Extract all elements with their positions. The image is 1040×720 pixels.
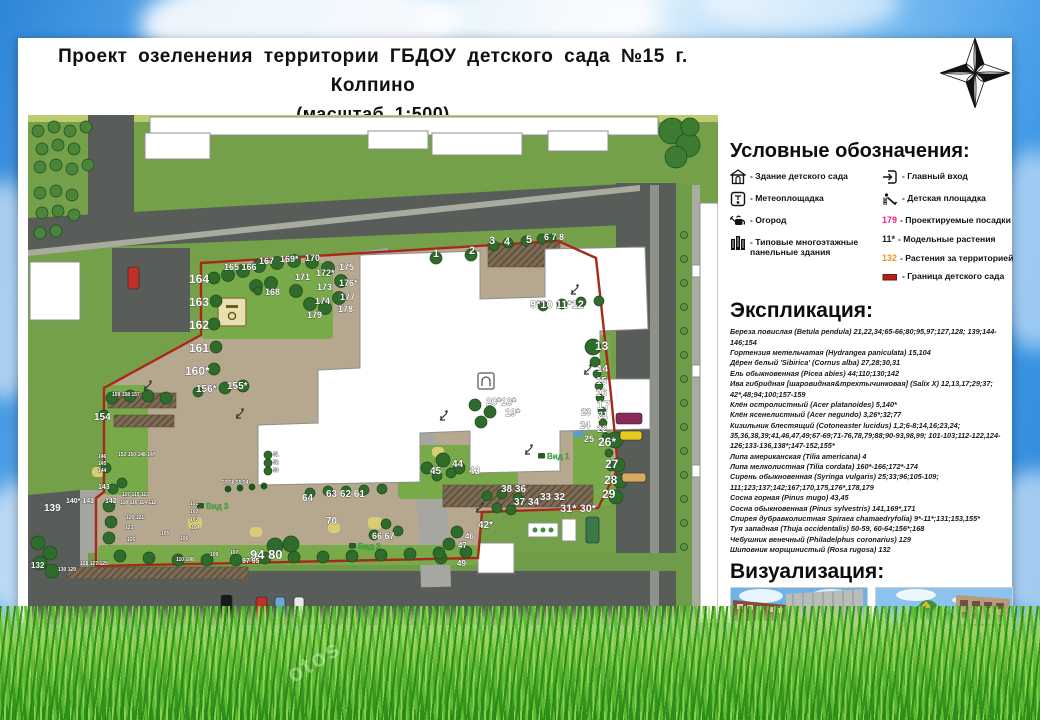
tree (475, 416, 487, 428)
map-plant-number: 178 (338, 304, 353, 314)
tree (443, 538, 455, 550)
map-plant-number: 156* (196, 384, 217, 395)
legend-item: 11*- Модельные растения (882, 234, 1015, 245)
legend-number-chip: 11* (882, 234, 895, 245)
explication-item: Шиповник морщинистый (Rosa rugosa) 132 (730, 545, 1015, 555)
explication-item: Гортензия метельчатая (Hydrangea panicul… (730, 348, 1015, 358)
map-plant-number: 103 (190, 517, 199, 523)
map-plant-number: 132 (31, 561, 45, 570)
tree (436, 453, 450, 467)
legend-item: 132- Растения за территорией (882, 253, 1015, 264)
map-plant-number: 33 32 (540, 492, 565, 503)
map-plant-number: 28 (604, 473, 618, 487)
map-plant-number: 109 (210, 552, 219, 558)
tree (160, 392, 172, 404)
map-plant-number: 126 (127, 537, 136, 543)
legend-item-label: - Проектируемые посадки (900, 215, 1011, 225)
map-plant-number: 44 (452, 459, 464, 470)
tree (261, 483, 267, 489)
legend-item: - Здание детского сада (730, 171, 876, 185)
tree (254, 287, 262, 295)
map-plant-number: 19* (505, 408, 520, 419)
map-plant-number: 106 (180, 536, 189, 542)
map-sand-patch (368, 517, 382, 529)
map-plant-number: 152 150 148 147 (118, 452, 156, 458)
tree (208, 272, 220, 284)
slide-glyph (589, 364, 592, 367)
legend-item-label: - Детская площадка (902, 193, 986, 203)
map-plant-number: 164 (189, 272, 209, 286)
tree (50, 225, 62, 237)
playground-slide-icon (882, 191, 898, 207)
map-plant-number: 97 95 (242, 558, 260, 565)
map-plant-number: 175 (339, 262, 354, 272)
meteo-site-icon (730, 191, 746, 207)
map-plant-number: 142 (105, 498, 117, 505)
tree (117, 478, 127, 488)
tree (346, 550, 358, 562)
car (128, 267, 139, 289)
view-label: Вид 3 (206, 502, 229, 511)
explication-item: Дёрен белый 'Sibirica' (Cornus alba) 27,… (730, 358, 1015, 368)
tree (210, 341, 222, 353)
tree (290, 285, 303, 298)
legend-item-label: - Граница детского сада (902, 271, 1004, 281)
tree (34, 187, 46, 199)
map-plant-number: 169* (280, 254, 299, 264)
tree (225, 486, 231, 492)
map-plant-number: 9*10 11*12 (530, 299, 584, 311)
territory-border-swatch (882, 269, 898, 285)
legend-item: - Типовые многоэтажные панельные здания (730, 237, 876, 258)
map-plant-number: 168 (265, 287, 280, 297)
tree (52, 205, 64, 217)
map-plant-number: 144 (98, 468, 107, 474)
legend: - Здание детского сада- Метеоплощадка- О… (730, 171, 1015, 293)
map-plant-number: 128 127 125 (80, 561, 108, 567)
slide-glyph (530, 444, 533, 447)
cloud (700, 0, 900, 34)
map-plant-number: 4 (504, 236, 511, 248)
tree (142, 390, 154, 402)
map-plant-number: 167 (259, 256, 274, 266)
tree (681, 256, 688, 263)
map-plant-number: 159 158 157 (112, 392, 140, 398)
map-plant-number: 140* 141 (66, 498, 94, 505)
tree (64, 125, 76, 137)
explication-heading: Экспликация: (730, 299, 1015, 323)
tree (68, 143, 80, 155)
map-plant-number: 21 (598, 410, 608, 420)
tree (681, 496, 688, 503)
tree (66, 189, 78, 201)
tree (594, 296, 604, 306)
camera-icon (538, 453, 545, 459)
map-plant-number: 163 (189, 295, 209, 309)
tree (52, 139, 64, 151)
playground-area (114, 415, 174, 427)
title-line-1: Проект озеленения территории ГБДОУ детск… (28, 42, 718, 101)
tree (605, 449, 613, 457)
tree (36, 207, 48, 219)
tree (681, 472, 688, 479)
explication-item: Сирень обыкновенная (Syringa vulgaris) 2… (730, 472, 1015, 493)
map-sand-patch (250, 527, 262, 537)
tree (34, 227, 46, 239)
map-plant-number: 27 (605, 457, 619, 471)
map-plant-number: 170 (305, 253, 320, 263)
explication-item: Ива гибридная [шаровидная&трехтычинковая… (730, 379, 1015, 400)
map-plant-number: 176* (339, 278, 358, 288)
explication-item: Липа мелколистная (Tilia cordata) 160*-1… (730, 462, 1015, 472)
map-plant-number: 1 (433, 248, 439, 260)
tree (80, 121, 92, 133)
legend-column-2: - Главный вход- Детская площадка179- Про… (882, 171, 1015, 293)
legend-item: - Метеоплощадка (730, 193, 876, 207)
tree (681, 352, 688, 359)
slide-glyph (481, 502, 484, 505)
tree (681, 118, 699, 136)
map-plant-number: 154 (94, 412, 111, 423)
legend-item: - Граница детского сада (882, 271, 1015, 285)
map-plant-number: 25 (584, 434, 594, 444)
map-plant-number: 160* (185, 364, 210, 378)
slide-glyph (241, 408, 244, 411)
tree (288, 551, 300, 563)
car (620, 431, 642, 440)
map-plant-number: 174 (315, 296, 330, 306)
legend-item-label: - Главный вход (902, 171, 968, 181)
tree (208, 318, 220, 330)
tree (681, 448, 688, 455)
tree (681, 520, 688, 527)
tree (283, 536, 299, 552)
map-plant-number: 130 129 (58, 567, 76, 573)
map-plant-number: 24 (580, 420, 590, 430)
explication-item: Чебушник венечный (Philadelphus coronari… (730, 535, 1015, 545)
tree (377, 484, 387, 494)
map-plant-number: 37 34 (514, 497, 539, 508)
explication-item: Сосна обыкновенная (Pinus sylvestris) 14… (730, 504, 1015, 514)
apartment-buildings-icon (730, 235, 746, 251)
map-plant-number: 105 (161, 531, 170, 537)
map-plant-number: 26* (598, 435, 616, 449)
map-plant-number: 43 (469, 466, 481, 477)
tree (482, 491, 492, 501)
map-plant-number: 38 36 (501, 484, 526, 495)
main-entrance-marker (478, 373, 494, 389)
tree (36, 143, 48, 155)
explication-list: Береза повислая (Betula pendula) 21,22,3… (730, 327, 1015, 555)
map-plant-number: 31* 30* (560, 503, 597, 515)
slide-glyph (445, 410, 448, 413)
tree (264, 467, 272, 475)
map-plant-number: 63 62 61 (326, 489, 365, 500)
map-plant-number: 14 (597, 364, 609, 375)
tree (31, 536, 45, 550)
legend-heading: Условные обозначения: (730, 140, 1015, 163)
slide-glyph (149, 380, 152, 383)
tree (681, 400, 688, 407)
legend-item-label: - Типовые многоэтажные панельные здания (750, 237, 876, 258)
right-column: Условные обозначения: - Здание детского … (730, 140, 1015, 645)
map-plant-number: 110 108 (176, 557, 194, 563)
map-plant-number: 23 (581, 407, 591, 417)
explication-item: Сосна горная (Pinus mugo) 43,45 (730, 493, 1015, 503)
legend-item-label: - Модельные растения (898, 234, 996, 244)
tree (381, 519, 391, 529)
map-plant-number: 51 (273, 452, 279, 458)
tree (45, 564, 59, 578)
map-plant-number: 49 (457, 559, 466, 568)
map-plant-number: 172* (316, 268, 335, 278)
tree (264, 459, 272, 467)
map-plant-number: 5 (526, 234, 532, 246)
map-plant-number: 6 7 8 (544, 232, 564, 242)
grass-strip (0, 606, 1040, 720)
map-plant-number: 143 (98, 484, 110, 491)
legend-number-chip: 179 (882, 215, 897, 226)
explication-item: Береза повислая (Betula pendula) 21,22,3… (730, 327, 1015, 348)
tree (114, 550, 126, 562)
map-plant-number: 46 (465, 532, 474, 541)
map-plant-number: 15 (596, 376, 608, 387)
map-plant-number: 3 (489, 235, 495, 247)
explication-item: Туя западная (Thuja occidentalis) 50-59,… (730, 524, 1015, 534)
car (586, 517, 599, 543)
legend-item-label: - Огород (750, 215, 787, 225)
compass-rose-icon (938, 36, 1012, 110)
map-plant-number: 42* (478, 520, 493, 531)
map-plant-number: 162 (189, 318, 209, 332)
map-plant-number: 22 (597, 424, 607, 434)
slide-glyph (576, 284, 579, 287)
map-plant-number: 173 (317, 282, 332, 292)
map-plant-number: 57 56 55 54 (222, 480, 249, 486)
tree (249, 484, 255, 490)
map-plant-number: 47 (458, 541, 467, 550)
explication-item: Ель обыкновенная (Picea abies) 44;110;13… (730, 369, 1015, 379)
tree (492, 503, 502, 513)
car (622, 473, 646, 482)
bus-stop-dots (533, 528, 554, 533)
explication-item: Клён ясенелистный (Acer negundo) 3,26*;3… (730, 410, 1015, 420)
tree (681, 424, 688, 431)
tree (66, 163, 78, 175)
playground-area (68, 567, 248, 579)
map-plant-number: 145 (98, 461, 107, 467)
explication-item: Спирея дубравколистная Spiraea chamaedry… (730, 514, 1015, 524)
camera-icon (349, 543, 356, 549)
legend-item-label: - Растения за территорией (900, 253, 1013, 263)
map-plant-number: 155* (227, 381, 248, 392)
legend-item-label: - Метеоплощадка (750, 193, 824, 203)
map-plant-number: 20*18* (486, 397, 516, 408)
tree (665, 146, 687, 168)
map-plant-number: 139 (44, 503, 61, 514)
tree (103, 532, 115, 544)
map-plant-number: 2 (469, 245, 475, 257)
map-plant-number: 171 (295, 272, 310, 282)
map-plant-number: 13 (595, 339, 609, 353)
explication-item: Клён остролистный (Acer platanoides) 5,1… (730, 400, 1015, 410)
tree (433, 547, 445, 559)
map-plant-number: 52 (273, 460, 279, 466)
map-plant-number: 45 (430, 466, 442, 477)
tree (681, 304, 688, 311)
legend-item: 179- Проектируемые посадки (882, 215, 1015, 226)
tree (317, 551, 329, 563)
legend-column-1: - Здание детского сада- Метеоплощадка- О… (730, 171, 876, 293)
map-plant-number: 107 (230, 550, 239, 556)
map-plant-number: 53 (273, 468, 279, 474)
tree (143, 552, 155, 564)
map-plant-number: 117 115 113 (122, 492, 149, 498)
legend-number-chip: 132 (882, 253, 897, 264)
legend-item: - Главный вход (882, 171, 1015, 185)
map-plant-number: 104 (191, 525, 200, 531)
tree (50, 159, 62, 171)
legend-item: - Огород (730, 215, 876, 229)
tree (34, 161, 46, 173)
tree (469, 399, 481, 411)
map-plant-number: 120 121 (126, 515, 144, 521)
legend-item-label: - Здание детского сада (750, 171, 848, 181)
map-plant-number: 146 (98, 454, 107, 460)
view-label: Вид 2 (358, 542, 381, 551)
map-plant-number: 70 (326, 516, 338, 527)
car (616, 413, 642, 424)
map-plant-number: 64 (302, 493, 314, 504)
kindergarten-building-icon (730, 169, 746, 185)
map-plant-number: 177 (340, 292, 355, 302)
slide-background: { "slide": { "title_line1": "Проект озел… (0, 0, 1040, 720)
tree (681, 280, 688, 287)
tree (681, 328, 688, 335)
tree (208, 363, 220, 375)
tree (681, 376, 688, 383)
tree (82, 159, 94, 171)
tree (264, 451, 272, 459)
site-plan-map: Вид 1Вид 2Вид 3 164163162161160*165 1661… (28, 115, 718, 625)
map-plant-number: 118 116 114 112 (120, 500, 157, 506)
tree (68, 209, 80, 221)
main-entrance-icon (882, 169, 898, 185)
map-plant-number: 29 (602, 487, 616, 501)
tree (210, 295, 222, 307)
tree (48, 121, 60, 133)
explication-item: Кизильник блестящий (Cotoneaster lucidus… (730, 421, 1015, 452)
map-plant-number: 161 (189, 341, 209, 355)
map-plant-number: 123 (125, 525, 134, 531)
legend-item: - Детская площадка (882, 193, 1015, 207)
tree (451, 526, 463, 538)
tree (681, 544, 688, 551)
map-plant-number: 66 67 (372, 531, 395, 541)
map-plant-number: 179 (307, 310, 322, 320)
view-label: Вид 1 (547, 452, 570, 461)
map-plant-number: 101 (190, 501, 199, 507)
map-sidewalk (692, 185, 700, 625)
garden-watering-can-icon (730, 213, 746, 229)
explication-item: Липа американская (Tilia americana) 4 (730, 452, 1015, 462)
tree (32, 125, 44, 137)
map-plant-number: 165 166 (224, 262, 257, 272)
tree (105, 516, 117, 528)
map-plant-number: 102 (190, 509, 199, 515)
visualization-heading: Визуализация: (730, 560, 1015, 584)
tree (50, 185, 62, 197)
tree (404, 548, 416, 560)
tree (681, 232, 688, 239)
